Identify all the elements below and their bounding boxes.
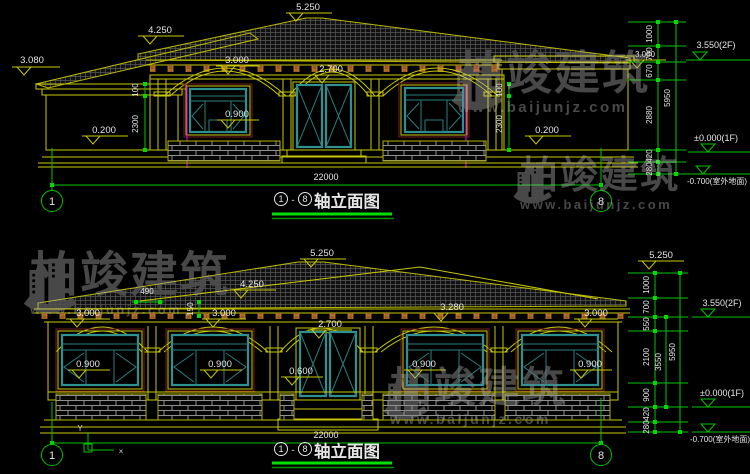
svg-text:1000: 1000 [645, 25, 654, 43]
axis-bubble-1: 1 [42, 148, 63, 212]
svg-text:4.250: 4.250 [240, 279, 264, 290]
drawing-title: 1 - 8 轴立面图 [272, 191, 394, 219]
vdim-left: 100 2300 [131, 82, 147, 152]
svg-text:3.550(2F): 3.550(2F) [702, 298, 741, 308]
svg-text:±0.000(1F): ±0.000(1F) [694, 133, 738, 143]
svg-text:1: 1 [49, 196, 55, 208]
svg-text:2.700: 2.700 [319, 64, 343, 75]
vdim-right: 100 2300 [495, 82, 511, 152]
level-eave-left: 3.080 [12, 55, 60, 75]
level-base-left: 0.200 [82, 125, 128, 144]
svg-text:3550: 3550 [654, 353, 663, 371]
svg-text:×: × [119, 447, 124, 456]
svg-text:280: 280 [645, 162, 654, 176]
dimension-chain: 1000 700 670 2880 420 280 5950 [628, 20, 686, 176]
axis-bubble-8: 8 [591, 148, 612, 212]
floor-level-ground: -0.700(室外地面) [690, 424, 750, 444]
svg-text:0.900: 0.900 [412, 359, 436, 370]
dim-rise: 150 [186, 300, 201, 318]
svg-text:2880: 2880 [645, 106, 654, 124]
svg-text:0.900: 0.900 [225, 109, 249, 120]
svg-text:900: 900 [642, 388, 651, 402]
svg-text:280: 280 [642, 420, 651, 434]
svg-text:0.900: 0.900 [208, 359, 232, 370]
svg-text:22000: 22000 [313, 172, 338, 182]
svg-text:±0.000(1F): ±0.000(1F) [700, 388, 744, 398]
window-right [399, 83, 469, 137]
svg-text:8: 8 [598, 450, 604, 462]
floor-level-2f: 3.550(2F) [686, 40, 750, 60]
svg-text:1: 1 [278, 194, 283, 204]
svg-text:100: 100 [495, 83, 504, 97]
svg-text:-: - [291, 195, 294, 206]
svg-text:700: 700 [645, 47, 654, 61]
floor-level-1f: ±0.000(1F) [692, 388, 750, 407]
plinth [40, 392, 626, 433]
svg-text:3.000: 3.000 [584, 308, 608, 319]
svg-text:2100: 2100 [642, 348, 651, 366]
svg-text:150: 150 [186, 302, 195, 316]
svg-text:3.280: 3.280 [440, 302, 464, 313]
svg-text:8: 8 [302, 444, 307, 454]
svg-text:3.550(2F): 3.550(2F) [696, 40, 735, 50]
svg-text:3.000: 3.000 [76, 308, 100, 319]
left-wing-wall [36, 84, 186, 150]
svg-text:0.600: 0.600 [289, 366, 313, 377]
overall-dim: 22000 [50, 172, 603, 187]
svg-text:8: 8 [598, 196, 604, 208]
svg-text:0.200: 0.200 [535, 125, 559, 136]
floor-level-1f: ±0.000(1F) [688, 133, 750, 152]
svg-text:100: 100 [131, 83, 140, 97]
svg-text:420: 420 [642, 407, 651, 421]
svg-text:Y: Y [77, 424, 83, 433]
roof [38, 262, 626, 309]
svg-text:3.080: 3.080 [20, 55, 44, 66]
svg-text:2.700: 2.700 [318, 319, 342, 330]
svg-text:420: 420 [645, 149, 654, 163]
svg-text:550: 550 [642, 317, 651, 331]
level-ridge-right: 5.250 [638, 250, 684, 269]
svg-text:-0.700(室外地面): -0.700(室外地面) [687, 176, 747, 186]
svg-text:8: 8 [302, 194, 307, 204]
svg-text:5950: 5950 [663, 89, 672, 107]
svg-text:2300: 2300 [131, 115, 140, 133]
svg-text:490: 490 [140, 287, 154, 296]
svg-text:-: - [291, 445, 294, 456]
svg-text:5.250: 5.250 [296, 2, 320, 13]
svg-text:0.900: 0.900 [76, 359, 100, 370]
svg-text:5950: 5950 [668, 343, 677, 361]
window-1 [56, 329, 144, 391]
svg-text:1: 1 [49, 450, 55, 462]
svg-text:轴立面图: 轴立面图 [314, 191, 380, 211]
svg-text:2300: 2300 [495, 115, 504, 133]
floor-level-2f: 3.550(2F) [692, 298, 750, 317]
svg-text:700: 700 [642, 300, 651, 314]
drawing-title: 1 - 8 轴立面图 [272, 441, 394, 468]
level-slope: 4.250 [138, 25, 184, 44]
svg-text:0.200: 0.200 [92, 125, 116, 136]
svg-text:3.000: 3.000 [212, 308, 236, 319]
top-elevation: 3.080 4.250 5.250 3.000 2.700 0.900 0.20… [12, 2, 750, 219]
ucs-icon: Y × [77, 424, 123, 456]
svg-text:5.250: 5.250 [649, 250, 673, 261]
svg-text:22000: 22000 [313, 430, 338, 440]
svg-text:3.000: 3.000 [225, 55, 249, 66]
svg-text:1: 1 [278, 444, 283, 454]
svg-text:670: 670 [645, 64, 654, 78]
floor-level-ground: -0.700(室外地面) [686, 166, 750, 186]
level-base-right: 0.200 [525, 125, 571, 144]
dimension-chain: 1000 700 550 2100 900 420 280 3550 5950 [628, 271, 688, 434]
svg-text:1000: 1000 [642, 276, 651, 294]
svg-text:轴立面图: 轴立面图 [314, 441, 380, 461]
cad-canvas: 3.080 4.250 5.250 3.000 2.700 0.900 0.20… [0, 0, 750, 474]
svg-text:5.250: 5.250 [310, 248, 334, 259]
bottom-elevation: 5.250 4.250 490 150 3.000 3.000 2.700 3.… [34, 248, 750, 468]
roof [36, 18, 630, 88]
svg-text:-0.700(室外地面): -0.700(室外地面) [690, 434, 750, 444]
svg-text:0.900: 0.900 [578, 359, 602, 370]
svg-text:4.250: 4.250 [148, 25, 172, 36]
